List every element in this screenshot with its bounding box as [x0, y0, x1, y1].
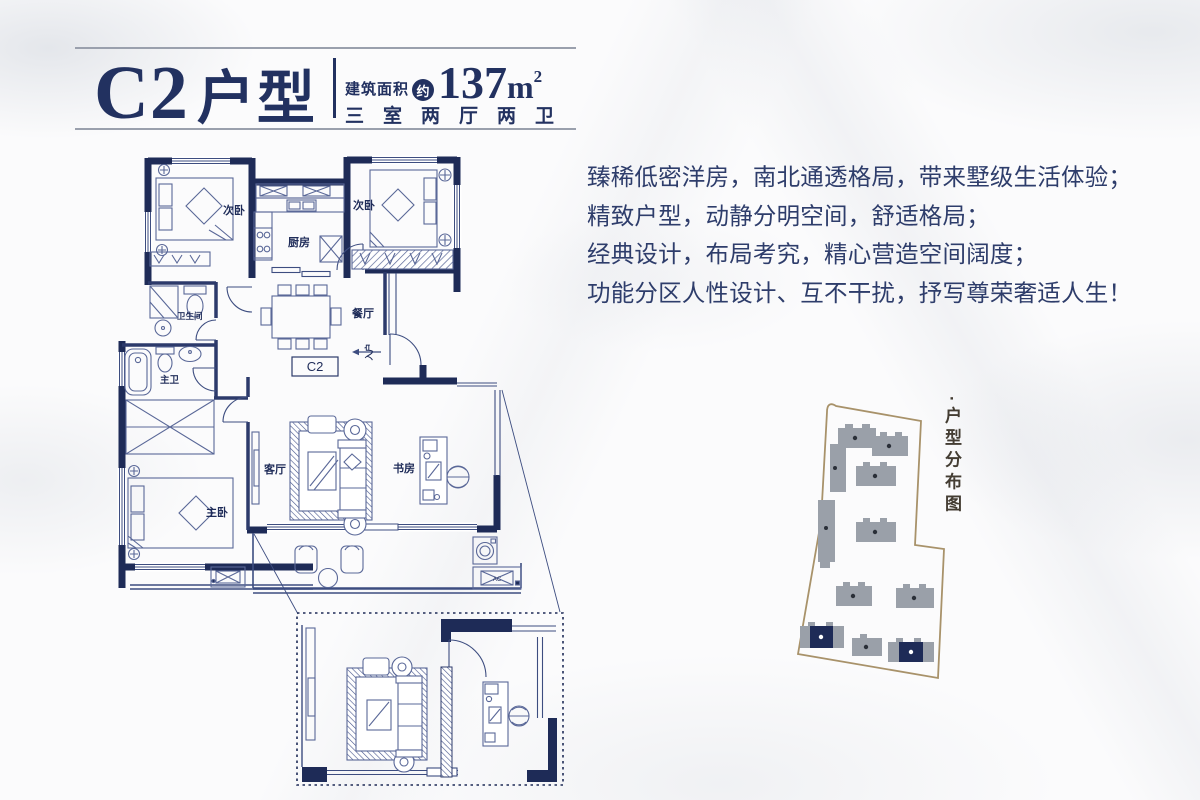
unit-type-suffix: 户型 — [197, 51, 317, 135]
label-entry: 入户 — [364, 343, 374, 361]
marketing-copy: 臻稀低密洋房，南北通透格局，带来墅级生活体验； 精致户型，动静分明空间，舒适格局… — [587, 158, 1172, 312]
inset-partition-wall — [441, 667, 452, 777]
label-master-bedroom: 主卧 — [206, 505, 228, 519]
label-bedroom-left: 次卧 — [223, 203, 245, 217]
siteplan-drawing — [780, 390, 960, 690]
detail-inset — [297, 613, 563, 785]
label-ac: AC — [493, 577, 502, 583]
area-exponent: 2 — [534, 67, 543, 87]
page-title: C2 户型 — [94, 50, 317, 137]
copy-line-4: 功能分区人性设计、互不干扰，抒写尊荣奢适人生！ — [587, 274, 1172, 313]
label-master-bath: 主卫 — [160, 374, 180, 386]
label-living: 客厅 — [263, 462, 286, 476]
siteplan-caption-bullet: · — [942, 396, 961, 407]
siteplan-caption: ·户型分布图 — [941, 396, 961, 517]
label-bathroom: 卫生间 — [177, 311, 203, 321]
unit-code: C2 — [94, 50, 189, 137]
floorplan-drawing: 次卧 厨房 次卧 卫生间 餐厅 主卫 主卧 客厅 书房 C2 入户 AC — [100, 145, 570, 800]
inset-furniture — [306, 628, 529, 772]
area-number: 137 — [438, 60, 507, 106]
copy-line-3: 经典设计，布局考究，精心营造空间阔度； — [587, 235, 1172, 274]
title-divider — [333, 58, 336, 118]
label-bedroom-right: 次卧 — [353, 198, 375, 212]
approx-badge: 约 — [412, 79, 434, 101]
siteplan-caption-text: 户型分布图 — [942, 407, 961, 517]
brochure-page: { "header": { "unit_code": "C2", "unit_t… — [0, 0, 1200, 800]
area-row: 建筑面积 约 137 m 2 — [345, 60, 542, 106]
copy-line-2: 精致户型，动静分明空间，舒适格局； — [587, 197, 1172, 236]
room-spec: 三室两厅两卫 — [345, 101, 573, 128]
copy-line-1: 臻稀低密洋房，南北通透格局，带来墅级生活体验； — [587, 158, 1172, 197]
label-dining: 餐厅 — [351, 306, 374, 320]
label-kitchen: 厨房 — [288, 235, 310, 249]
label-study: 书房 — [393, 461, 415, 475]
label-unit-code: C2 — [307, 359, 324, 374]
header-rule-top — [75, 47, 576, 49]
